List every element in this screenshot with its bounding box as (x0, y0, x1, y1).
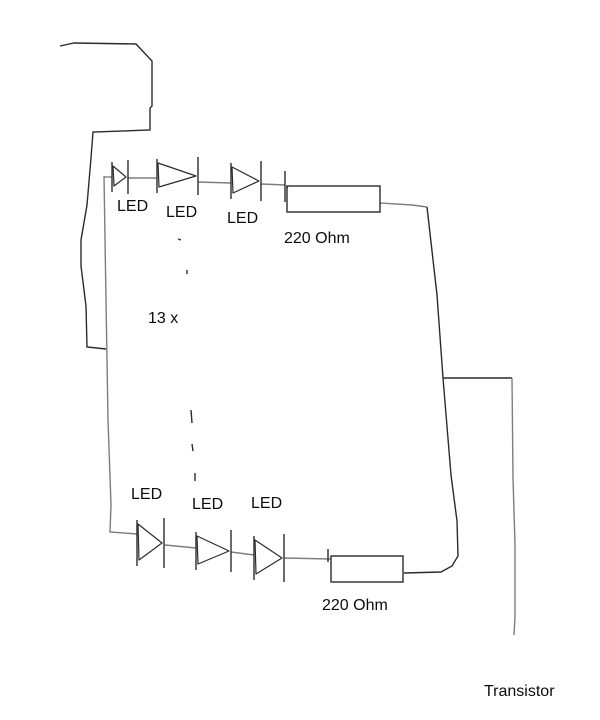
label-resistor-bottom: 220 Ohm (322, 597, 388, 615)
wires-layer (60, 43, 515, 635)
resistor-top-body (287, 186, 380, 212)
wire-divider-dash-1 (191, 410, 192, 423)
circuit-sketch-page: LEDLEDLED220 Ohm13 xLEDLEDLED220 OhmTran… (0, 0, 600, 720)
wire-bottom-resistor-in (284, 558, 331, 559)
wire-left-rail (104, 176, 137, 534)
label-multiplier: 13 x (148, 310, 178, 328)
led-bottom-2-symbol (196, 530, 231, 572)
led-top-2-symbol-triangle (158, 163, 196, 187)
wire-bottom-row-seg-2 (165, 545, 196, 548)
wire-transistor-lead (512, 378, 515, 635)
resistor-bottom-body (331, 556, 403, 582)
led-top-3-symbol (231, 161, 261, 201)
led-bottom-2-symbol-triangle (197, 536, 229, 564)
wire-right-diagonal (427, 207, 443, 378)
led-top-1-symbol-triangle (113, 166, 126, 186)
label-led-bottom-1: LED (131, 486, 162, 504)
label-led-top-3: LED (227, 210, 258, 228)
wire-right-descent (404, 378, 458, 573)
led-top-1-symbol (112, 160, 128, 194)
label-led-top-1: LED (117, 198, 148, 216)
label-led-bottom-3: LED (251, 495, 282, 513)
wire-top-row-seg-3 (198, 182, 231, 183)
led-bottom-3-symbol-triangle (255, 540, 282, 574)
label-transistor: Transistor (484, 683, 555, 701)
label-led-top-2: LED (166, 204, 197, 222)
led-bottom-1-symbol (137, 518, 164, 568)
wire-bottom-row-seg-3 (231, 552, 254, 555)
label-led-bottom-2: LED (192, 496, 223, 514)
led-top-3-symbol-triangle (232, 167, 259, 193)
wire-divider-dot-1 (178, 239, 181, 240)
wire-divider-dash-2 (192, 444, 193, 451)
wire-top-row-seg-4 (261, 184, 285, 185)
circuit-canvas (0, 0, 600, 720)
led-bottom-3-symbol (254, 534, 284, 582)
wire-top-resistor-out (380, 203, 427, 207)
led-top-2-symbol (157, 157, 198, 195)
label-resistor-top: 220 Ohm (284, 230, 350, 248)
led-bottom-1-symbol-triangle (138, 524, 162, 560)
